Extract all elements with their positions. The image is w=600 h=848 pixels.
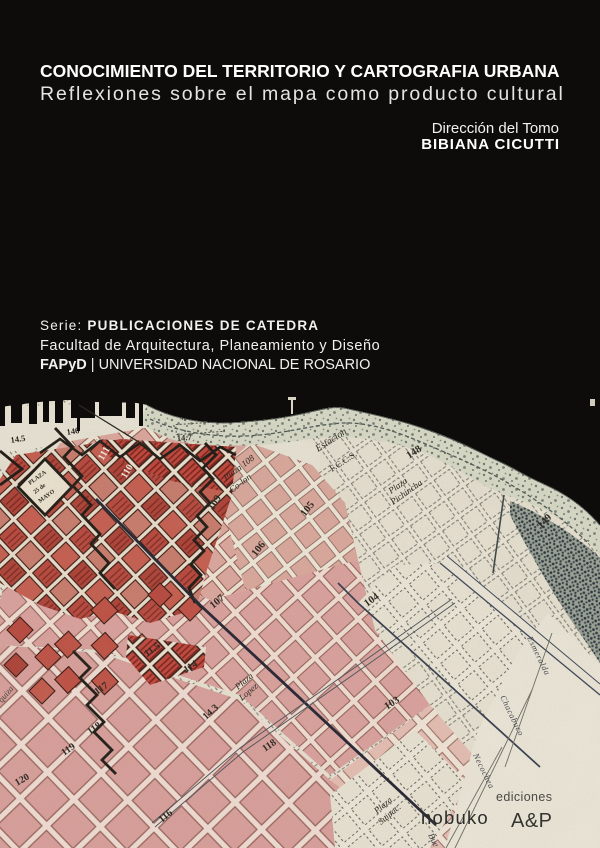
svg-text:nobuko: nobuko xyxy=(421,807,489,828)
svg-text:ediciones: ediciones xyxy=(496,790,552,804)
svg-text:A&P: A&P xyxy=(511,810,553,832)
